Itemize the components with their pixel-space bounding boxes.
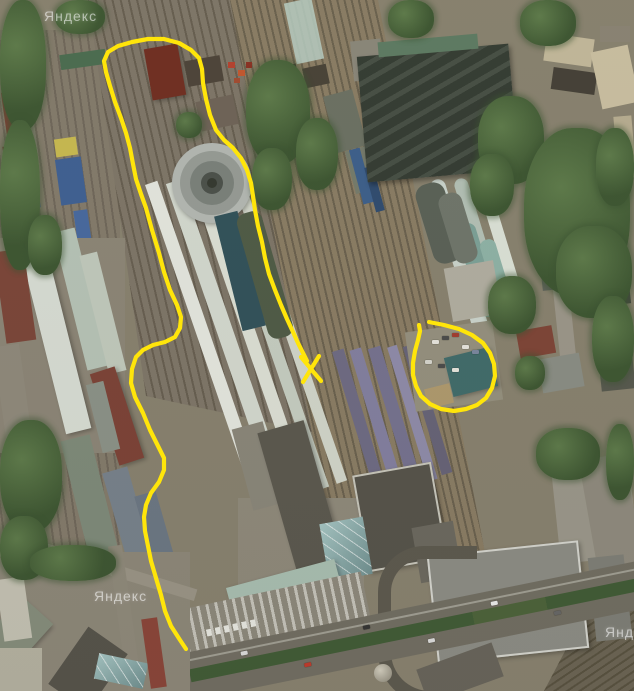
car [472,350,479,354]
trees [606,424,634,500]
roundhouse-ring [190,161,234,205]
car [432,340,439,344]
trees [470,154,514,216]
building [0,648,42,691]
car [304,662,312,667]
trees [55,0,105,34]
roundhouse-building [172,143,252,223]
church-dome [374,664,392,682]
car [438,364,445,368]
trees [592,296,634,382]
car [363,625,371,630]
trees [28,215,62,275]
satellite-map[interactable]: Яндекс Яндекс Яндекс [0,0,634,691]
freight-debris [228,62,235,68]
container-stack [54,137,78,158]
car [490,601,498,606]
roundhouse-turntable [207,178,217,188]
trees [515,356,545,390]
trees [388,0,434,38]
car [554,610,562,615]
car [442,336,449,340]
trees [0,420,62,532]
trees [488,276,536,334]
apartment-building [551,67,598,95]
freight-debris [234,78,240,83]
freight-debris [238,70,245,76]
trees [296,118,338,190]
car [240,650,248,655]
trees [596,128,634,206]
roundhouse-ring [180,151,244,215]
trees [536,428,600,480]
apartment-building [590,45,634,110]
car [425,360,432,364]
freight-debris [246,62,252,68]
car [452,333,459,337]
trees [176,112,202,138]
trees [0,0,46,130]
car [428,638,436,643]
building [600,26,630,42]
trees [520,0,576,46]
roundhouse-center [201,172,223,194]
trees [252,148,292,210]
trees [30,545,116,581]
car [462,345,469,349]
car [452,368,459,372]
